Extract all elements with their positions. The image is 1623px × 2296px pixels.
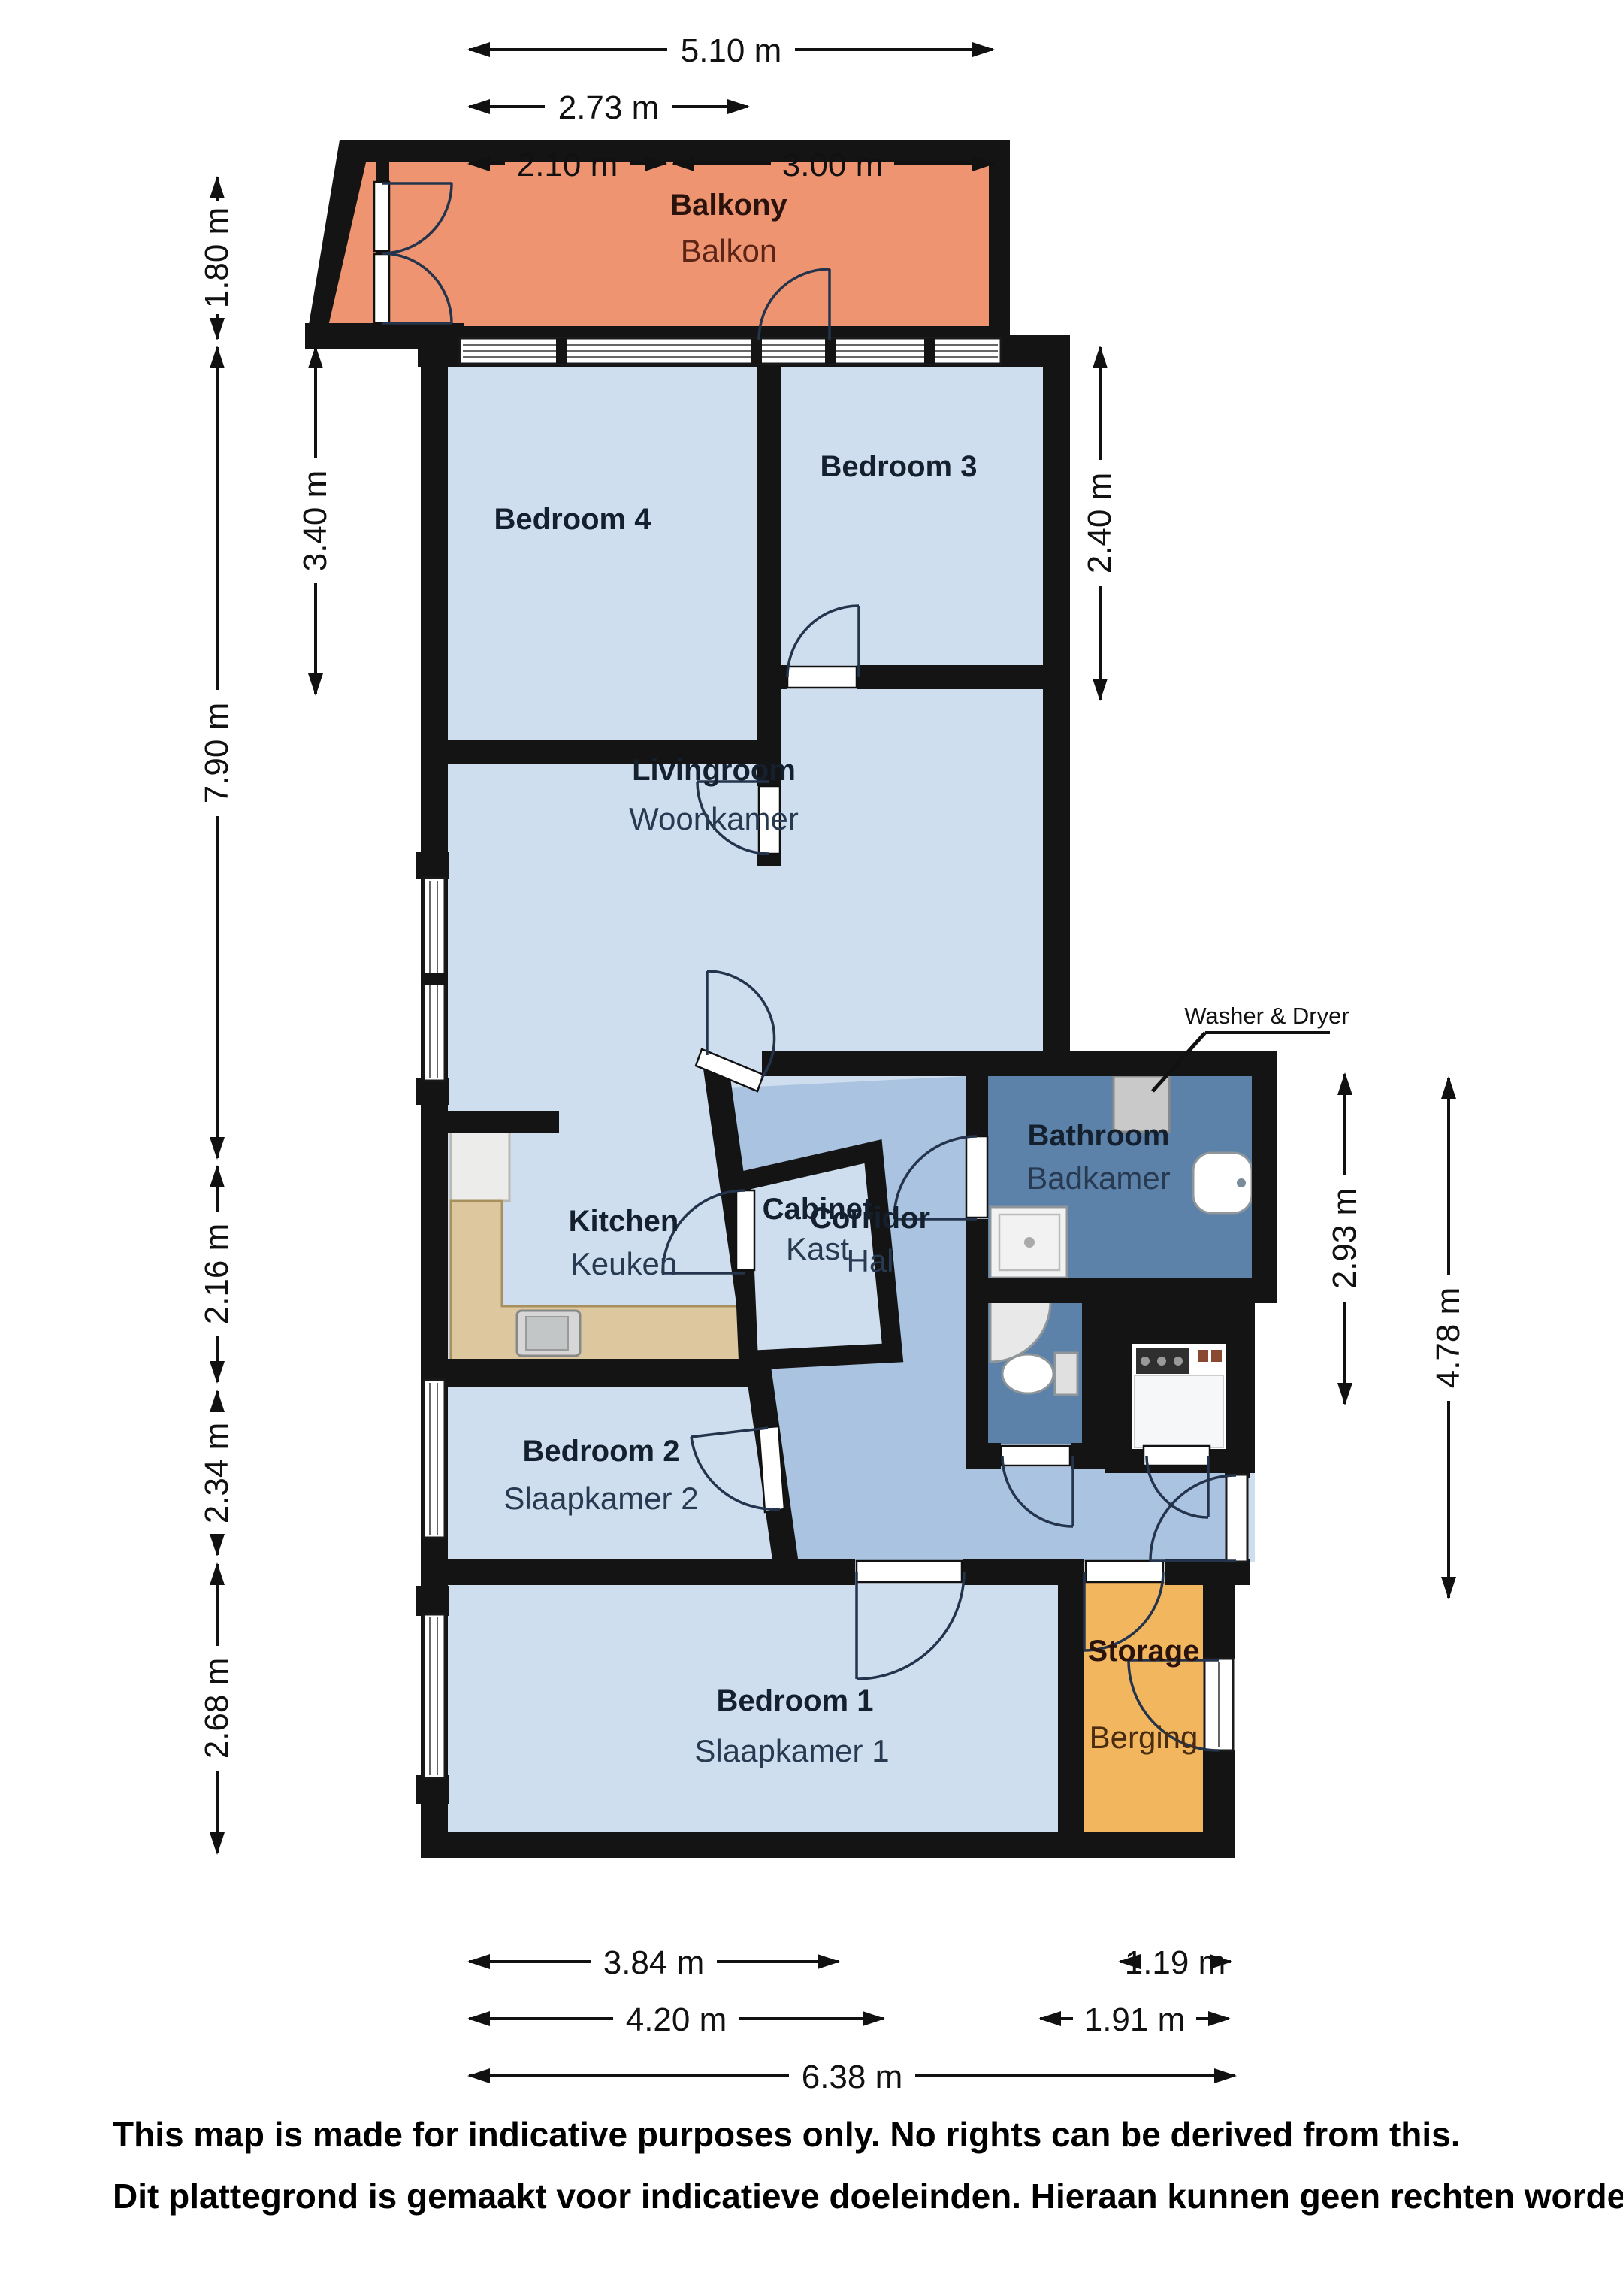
dim-bottom-119: 1.19 m <box>1125 1944 1226 1981</box>
wall-stub <box>416 1586 449 1616</box>
bed3-bottom-wall-a <box>757 665 787 689</box>
mullion <box>751 338 762 364</box>
cabinet-door-frame <box>736 1190 754 1270</box>
dim-left-790: 7.90 m <box>198 703 235 804</box>
mullion <box>825 338 836 364</box>
kitchen-sink-basin <box>526 1317 568 1350</box>
balcony-floor <box>328 162 989 326</box>
bedroom3-label: Bedroom 3 <box>821 450 978 483</box>
washer-dryer-label: Washer & Dryer <box>1184 1003 1349 1029</box>
shower-drain <box>1024 1237 1035 1248</box>
valve <box>1211 1350 1222 1362</box>
bathroom-label-du: Badkamer <box>1026 1160 1170 1196</box>
balcony-door-frame-a <box>374 182 389 251</box>
bedroom1-door-frame <box>857 1561 962 1582</box>
storage-door-frame <box>1086 1561 1163 1582</box>
dim-right-293: 2.93 m <box>1326 1188 1363 1290</box>
corridor-label-du: Hal <box>846 1243 893 1278</box>
window-divider <box>421 973 448 985</box>
right-wall-upper <box>1043 335 1070 1076</box>
dim-left-340: 3.40 m <box>297 470 334 572</box>
bathroom-left-wall-b <box>966 1219 988 1281</box>
toilet-tank <box>1055 1353 1077 1395</box>
disclaimer-du: Dit plattegrond is gemaakt voor indicati… <box>113 2177 1623 2216</box>
dim-left-180: 1.80 m <box>198 207 235 309</box>
mid-wall-a <box>421 1559 855 1585</box>
dim-left-268: 2.68 m <box>198 1658 235 1759</box>
bed3-bottom-wall-b <box>857 665 1044 689</box>
balcony-label-du: Balkon <box>681 233 777 268</box>
cabinet-label-du: Kast <box>786 1231 849 1266</box>
bedroom1-window <box>424 1614 445 1778</box>
dim-left-216: 2.16 m <box>198 1224 235 1325</box>
kitchen-stub-wall <box>446 1111 559 1133</box>
floorplan-page: Balkony Balkon Bedroom 3 Bedroom 4 Livin… <box>0 0 1623 2296</box>
dim-top-510: 5.10 m <box>681 32 782 69</box>
toilet-door-frame <box>1001 1446 1070 1466</box>
bed3-bed4-divider <box>757 365 781 786</box>
dim-top-210: 2.10 m <box>517 147 618 183</box>
mid-wall-b <box>963 1559 1084 1585</box>
dim-top-300: 3.00 m <box>782 147 884 183</box>
toilet-right-wall <box>1082 1300 1105 1467</box>
bedroom3-door-frame <box>787 667 857 688</box>
disclaimer-en: This map is made for indicative purposes… <box>113 2115 1461 2154</box>
floorplan-drawing: Balkony Balkon Bedroom 3 Bedroom 4 Livin… <box>0 0 1623 2296</box>
wall-stub <box>416 852 449 879</box>
kitchen-label-du: Keuken <box>570 1246 677 1281</box>
livingroom-label-en: Livingroom <box>632 754 796 787</box>
bedroom2-label-en: Bedroom 2 <box>523 1435 680 1468</box>
bedroom2-window <box>424 1380 445 1538</box>
balcony-label-en: Balkony <box>670 189 787 222</box>
balcony-door-frame-b <box>374 254 389 323</box>
kitchen-bottom-wall <box>421 1359 766 1387</box>
wall-stub <box>1203 1629 1235 1659</box>
mullion <box>924 338 935 364</box>
bedroom2-label-du: Slaapkamer 2 <box>503 1481 698 1516</box>
knob <box>1157 1357 1166 1366</box>
dim-top-273: 2.73 m <box>558 89 660 126</box>
toilet-bowl <box>1002 1354 1053 1393</box>
bottom-wall <box>421 1832 1235 1858</box>
bathroom-bottom-wall <box>966 1278 1277 1303</box>
bathroom-sink-tap <box>1237 1178 1246 1187</box>
dim-bottom-384: 3.84 m <box>603 1944 705 1981</box>
wall-stub <box>416 1775 449 1804</box>
dim-bottom-420: 4.20 m <box>626 2001 727 2038</box>
livingroom-label-du: Woonkamer <box>629 801 799 836</box>
valve <box>1198 1350 1208 1362</box>
bedroom4-label: Bedroom 4 <box>494 503 652 536</box>
bathroom-right-wall <box>1252 1051 1277 1303</box>
storage-label-en: Storage <box>1088 1635 1200 1668</box>
storage-left-wall <box>1058 1584 1084 1835</box>
toilet-bottom-wall-a <box>966 1443 1001 1469</box>
kitchen-label-en: Kitchen <box>569 1205 679 1238</box>
bathroom-top-wall <box>762 1051 1277 1076</box>
bedroom1-label-du: Slaapkamer 1 <box>694 1733 889 1768</box>
boiler-body <box>1135 1375 1223 1447</box>
dim-bottom-638: 6.38 m <box>802 2059 903 2095</box>
bathroom-label-en: Bathroom <box>1028 1119 1170 1152</box>
dim-right-478: 4.78 m <box>1430 1287 1467 1389</box>
bedroom1-label-en: Bedroom 1 <box>717 1684 874 1717</box>
knob <box>1141 1357 1150 1366</box>
storage-label-du: Berging <box>1090 1720 1198 1755</box>
utility-door-frame <box>1144 1446 1210 1466</box>
dim-bottom-191: 1.91 m <box>1084 2001 1186 2038</box>
knob <box>1174 1357 1183 1366</box>
bathroom-door-frame <box>966 1136 987 1218</box>
disclaimer: This map is made for indicative purposes… <box>113 2115 1623 2216</box>
utility-alcove <box>1132 1344 1226 1449</box>
bathroom-left-wall-a <box>966 1075 988 1136</box>
corridor-label-en: Corridor <box>810 1202 930 1235</box>
divider-end <box>757 854 781 866</box>
dim-left-234: 2.34 m <box>198 1423 235 1524</box>
entry-door-leaf <box>1226 1475 1247 1562</box>
dim-right-240: 2.40 m <box>1081 473 1118 574</box>
mullion <box>556 338 567 364</box>
